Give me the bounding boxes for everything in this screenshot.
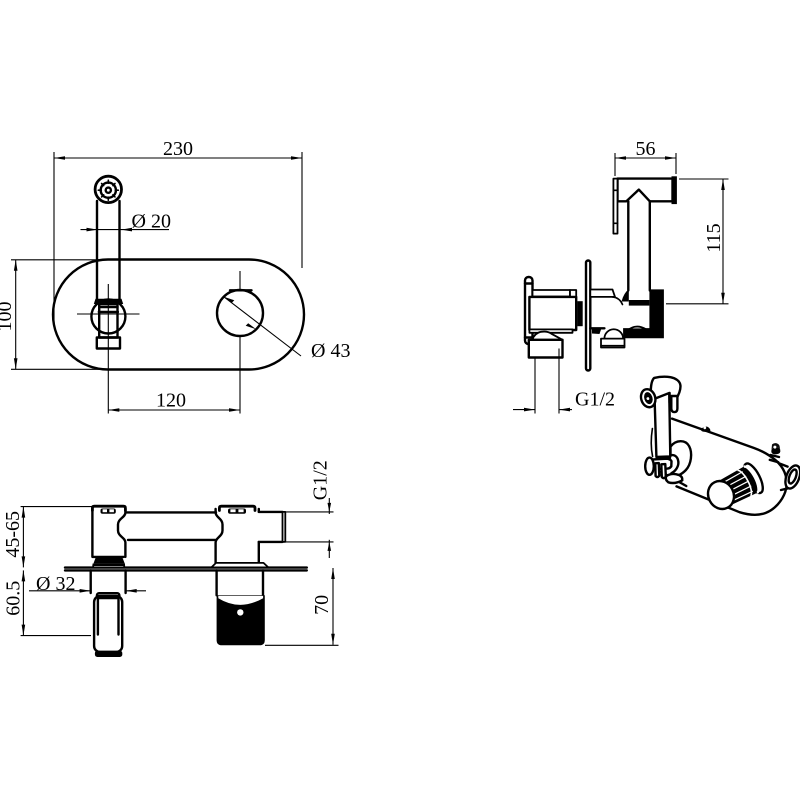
- svg-text:45-65: 45-65: [2, 511, 24, 558]
- svg-text:Ø 20: Ø 20: [132, 211, 171, 233]
- svg-text:230: 230: [163, 138, 193, 160]
- svg-text:56: 56: [636, 138, 656, 160]
- svg-text:G1/2: G1/2: [310, 460, 332, 500]
- svg-text:Ø 43: Ø 43: [311, 340, 350, 362]
- svg-text:60.5: 60.5: [2, 581, 24, 616]
- svg-text:Ø 32: Ø 32: [36, 573, 75, 595]
- svg-text:115: 115: [703, 223, 725, 252]
- svg-text:G1/2: G1/2: [575, 389, 615, 411]
- svg-text:70: 70: [311, 595, 333, 615]
- svg-text:120: 120: [156, 390, 186, 412]
- svg-text:100: 100: [0, 302, 16, 332]
